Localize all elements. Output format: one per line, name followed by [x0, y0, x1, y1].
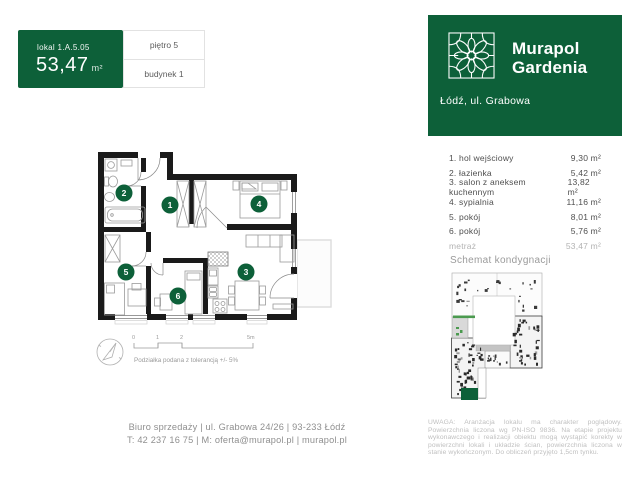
- gardenia-flower-icon: [448, 32, 495, 84]
- furniture: [105, 159, 295, 315]
- schematic-title: Schemat kondygnacji: [450, 255, 551, 266]
- brand-location: Łódź, ul. Grabowa: [440, 95, 530, 107]
- total-area: 53,47 m²: [566, 241, 601, 251]
- flyer-page: lokal 1.A.5.05 53,47m² piętro 5 budynek …: [0, 0, 640, 480]
- room-area: 9,30 m²: [571, 153, 601, 163]
- scale-bar: [134, 343, 253, 348]
- svg-text:2: 2: [122, 188, 127, 198]
- room-label: 3. salon z aneksem kuchennym: [449, 177, 568, 197]
- svg-text:1: 1: [168, 200, 173, 210]
- compass-icon: [97, 339, 123, 365]
- scale-labels: 0 1 2 5m: [132, 335, 255, 341]
- room-row: 1. hol wejściowy 9,30 m²: [449, 151, 601, 166]
- room-row: 5. pokój 8,01 m²: [449, 209, 601, 224]
- unit-number: lokal 1.A.5.05: [37, 43, 90, 52]
- unit-area-unit: m²: [92, 63, 104, 73]
- sales-office-footer: Biuro sprzedaży | ul. Grabowa 24/26 | 93…: [77, 421, 397, 447]
- balcony-outline: [297, 240, 331, 307]
- legal-disclaimer: UWAGA: Aranżacja lokalu ma charakter pog…: [428, 419, 622, 457]
- footer-address: Biuro sprzedaży | ul. Grabowa 24/26 | 93…: [77, 421, 397, 434]
- room-area: 11,16 m²: [566, 197, 601, 207]
- room-label: 6. pokój: [449, 226, 480, 236]
- room-total-row: metraż 53,47 m²: [449, 239, 601, 254]
- svg-text:1: 1: [156, 335, 159, 341]
- unit-card: lokal 1.A.5.05 53,47m²: [18, 30, 123, 88]
- svg-text:6: 6: [176, 291, 181, 301]
- svg-text:5m: 5m: [247, 335, 255, 341]
- room-list: 1. hol wejściowy 9,30 m² 2. łazienka 5,4…: [449, 151, 601, 253]
- building-cell: budynek 1: [124, 60, 204, 88]
- svg-text:5: 5: [124, 267, 129, 277]
- room-label: 5. pokój: [449, 212, 480, 222]
- brand-box: Murapol Gardenia Łódź, ul. Grabowa: [428, 15, 622, 136]
- room-label: 4. sypialnia: [449, 197, 494, 207]
- room-area: 5,76 m²: [571, 226, 601, 236]
- unit-area-value: 53,47: [36, 54, 89, 76]
- room-label: 1. hol wejściowy: [449, 153, 514, 163]
- svg-text:2: 2: [180, 335, 183, 341]
- brand-name: Murapol Gardenia: [512, 39, 587, 77]
- floor-schematic: [451, 270, 543, 402]
- brand-name-line2: Gardenia: [512, 58, 587, 77]
- unit-meta-table: piętro 5 budynek 1: [123, 30, 205, 88]
- room-row: 6. pokój 5,76 m²: [449, 224, 601, 239]
- floor-cell: piętro 5: [124, 31, 204, 60]
- schematic-outline: [452, 273, 543, 398]
- svg-text:4: 4: [257, 199, 262, 209]
- interior-walls: [104, 158, 297, 320]
- footer-contact: T: 42 237 16 75 | M: oferta@murapol.pl |…: [77, 434, 397, 447]
- svg-text:0: 0: [132, 335, 135, 341]
- tolerance-note: Podziałka podana z tolerancją +/- 5%: [134, 357, 239, 364]
- room-row: 3. salon z aneksem kuchennym 13,82 m²: [449, 180, 601, 195]
- unit-area: 53,47m²: [36, 54, 103, 77]
- room-area: 5,42 m²: [571, 168, 601, 178]
- svg-text:3: 3: [244, 267, 249, 277]
- room-label: 2. łazienka: [449, 168, 492, 178]
- brand-name-line1: Murapol: [512, 39, 587, 58]
- total-label: metraż: [449, 241, 476, 251]
- room-area: 8,01 m²: [571, 212, 601, 222]
- apartment-floor-plan: 1 2 3 4 5 6 0 1 2 5m Podziałka podana z …: [85, 140, 345, 372]
- room-area: 13,82 m²: [568, 177, 601, 197]
